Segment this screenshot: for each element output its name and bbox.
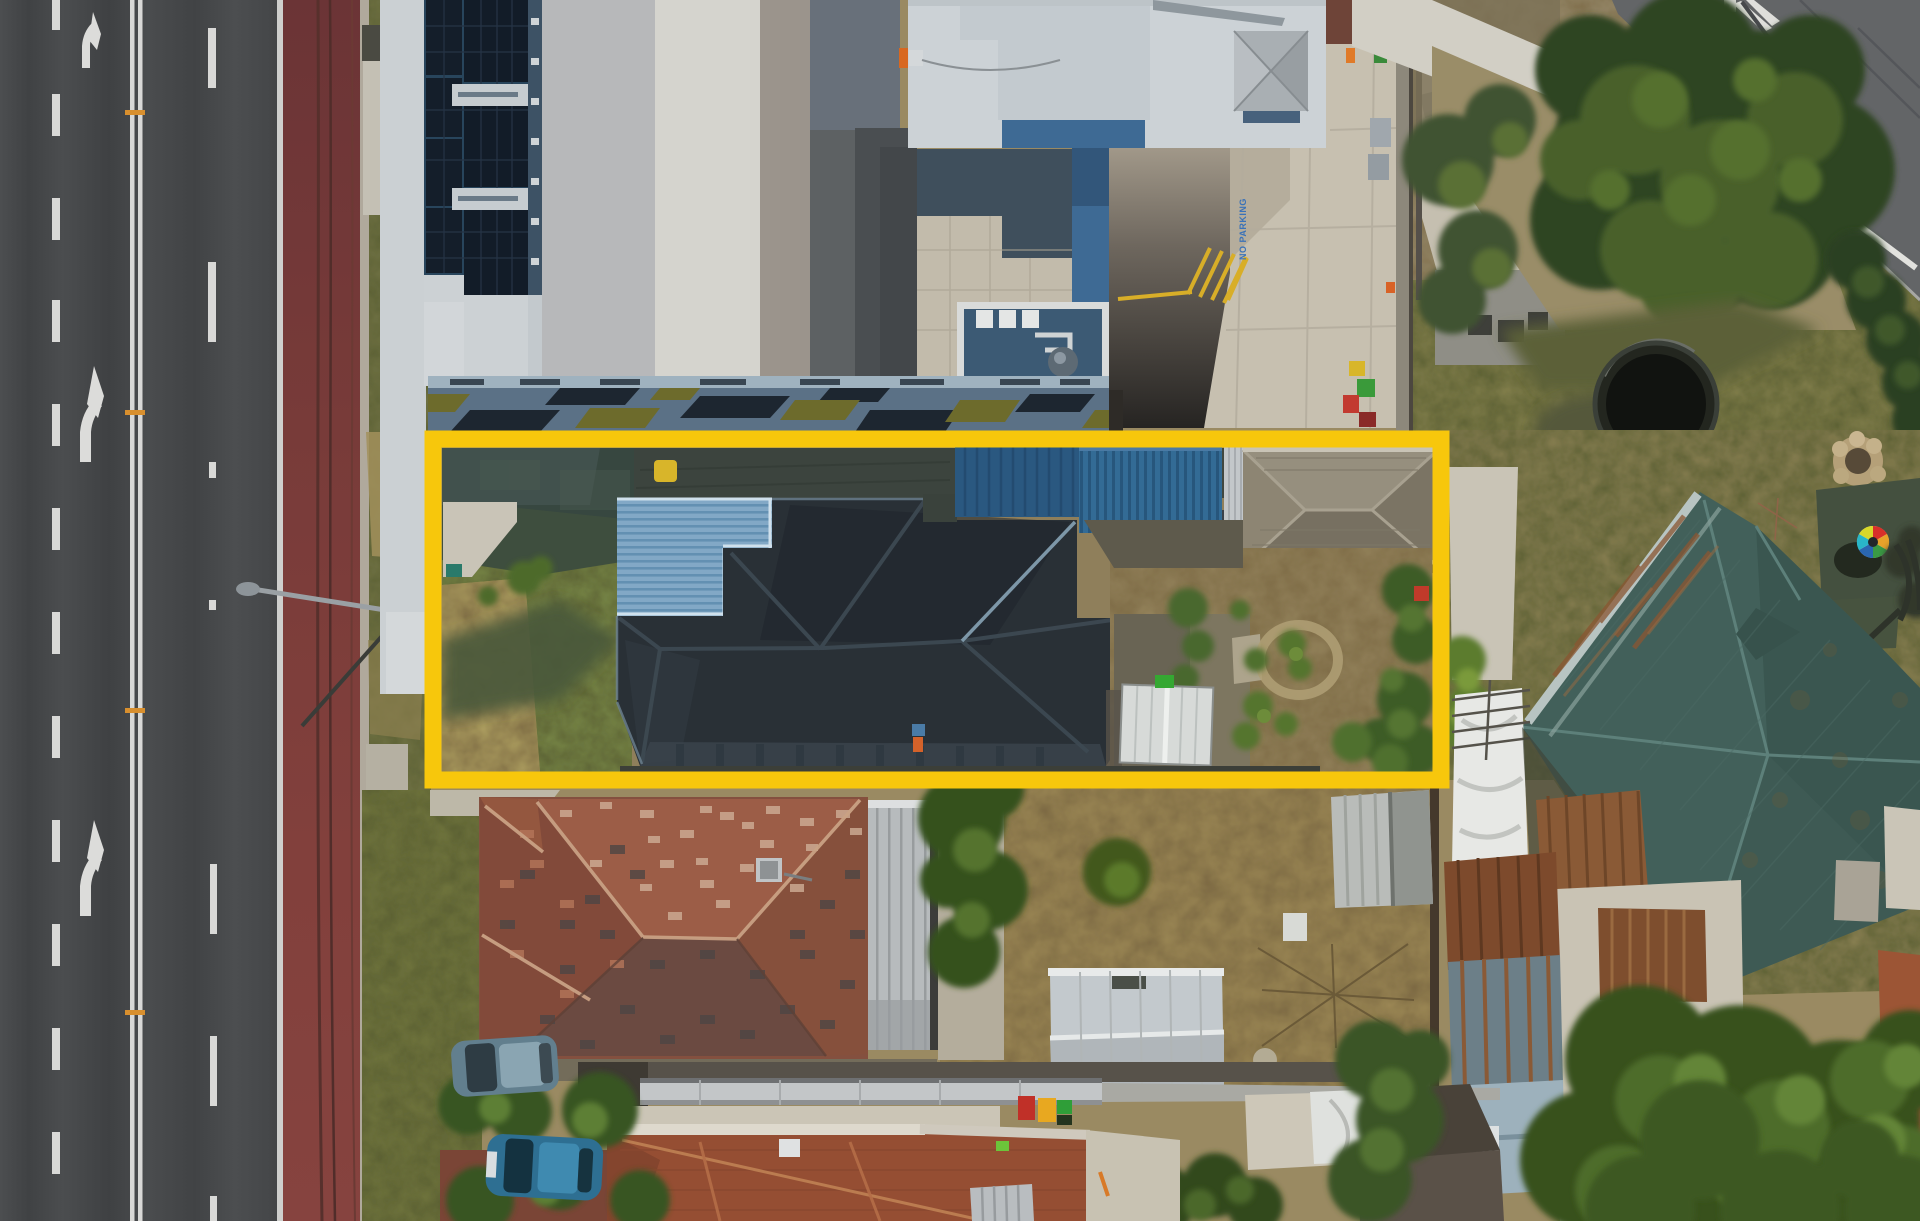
svg-text:NO PARKING: NO PARKING	[1238, 198, 1248, 260]
